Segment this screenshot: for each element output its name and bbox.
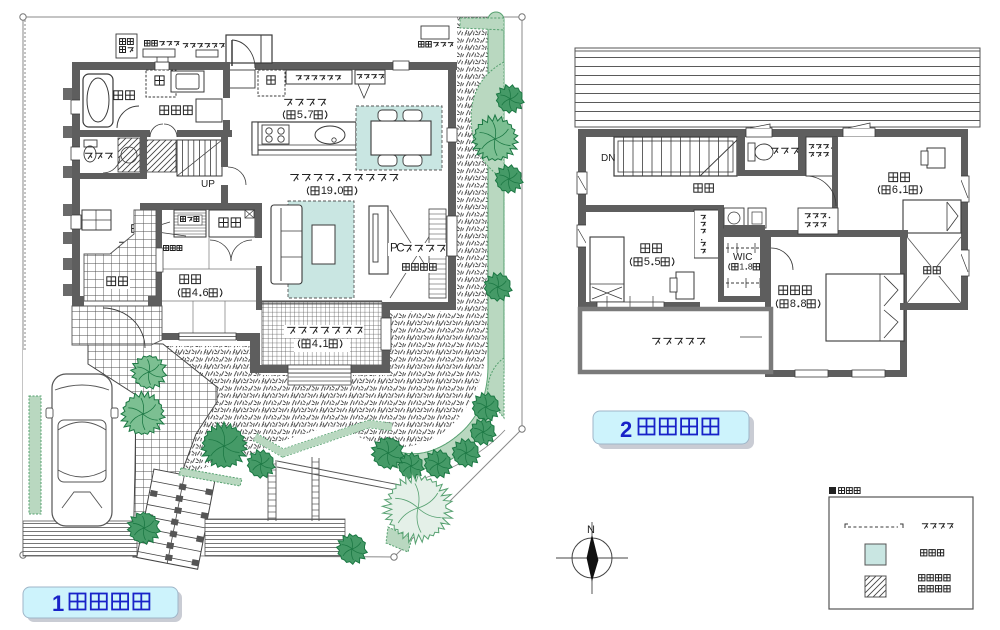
- svg-text:5: 5: [644, 256, 650, 268]
- svg-text:UP: UP: [201, 179, 215, 190]
- svg-text:DN: DN: [601, 153, 615, 164]
- svg-text:5: 5: [297, 109, 303, 121]
- svg-text:1: 1: [52, 591, 64, 616]
- svg-text:1: 1: [903, 184, 909, 196]
- svg-text:8: 8: [748, 261, 753, 271]
- svg-text:5: 5: [655, 256, 661, 268]
- svg-text:N: N: [587, 524, 595, 536]
- svg-text:0: 0: [337, 185, 343, 197]
- svg-text:1: 1: [740, 261, 745, 271]
- svg-text:6: 6: [203, 287, 209, 299]
- svg-text:1: 1: [323, 338, 329, 350]
- svg-text:4: 4: [312, 338, 318, 350]
- svg-text:8: 8: [790, 298, 796, 310]
- svg-text:9: 9: [327, 185, 333, 197]
- svg-text:8: 8: [801, 298, 807, 310]
- svg-text:7: 7: [308, 109, 314, 121]
- svg-text:2: 2: [620, 417, 632, 442]
- svg-text:4: 4: [192, 287, 198, 299]
- svg-text:C: C: [396, 243, 404, 255]
- svg-text:6: 6: [892, 184, 898, 196]
